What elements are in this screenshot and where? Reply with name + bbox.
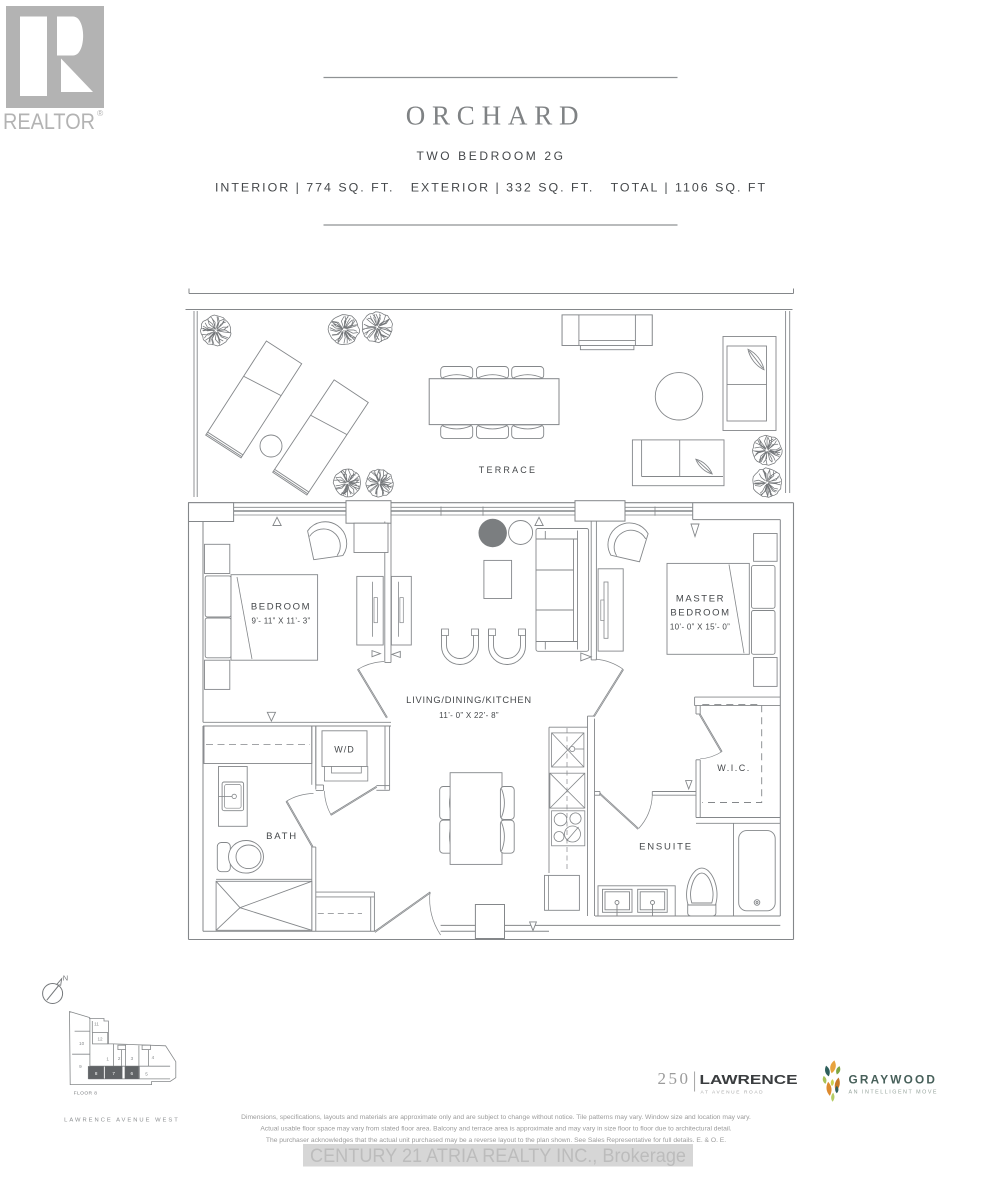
svg-text:BEDROOM: BEDROOM	[251, 602, 311, 613]
svg-text:3: 3	[131, 1056, 134, 1061]
svg-text:5: 5	[145, 1072, 148, 1077]
svg-text:ORCHARD: ORCHARD	[406, 101, 586, 131]
svg-text:7: 7	[112, 1071, 115, 1076]
svg-text:10’- 0” X 15’- 0”: 10’- 0” X 15’- 0”	[670, 623, 730, 632]
svg-text:6: 6	[131, 1071, 134, 1076]
svg-text:AT AVENUE ROAD: AT AVENUE ROAD	[701, 1090, 765, 1096]
svg-text:9’- 11” X 11’- 3”: 9’- 11” X 11’- 3”	[251, 617, 310, 626]
svg-text:TWO BEDROOM 2G: TWO BEDROOM 2G	[416, 149, 565, 163]
svg-text:Dimensions, specifications, la: Dimensions, specifications, layouts and …	[241, 1114, 751, 1121]
svg-text:W.I.C.: W.I.C.	[717, 763, 751, 773]
svg-text:INTERIOR | 774 SQ. FT. EXTER: INTERIOR | 774 SQ. FT. EXTERIOR | 332 SQ…	[215, 181, 767, 195]
svg-text:BEDROOM: BEDROOM	[670, 608, 730, 619]
svg-text:1: 1	[106, 1057, 109, 1062]
svg-text:LIVING/DINING/KITCHEN: LIVING/DINING/KITCHEN	[406, 695, 532, 705]
svg-text:W/D: W/D	[334, 745, 355, 755]
svg-text:CENTURY 21 ATRIA REALTY INC.,: CENTURY 21 ATRIA REALTY INC., Brokerage	[310, 1145, 686, 1167]
svg-text:MASTER: MASTER	[676, 594, 725, 605]
svg-text:2: 2	[118, 1056, 121, 1061]
svg-text:TERRACE: TERRACE	[479, 465, 537, 475]
svg-text:BATH: BATH	[266, 831, 298, 842]
svg-text:ENSUITE: ENSUITE	[639, 842, 693, 853]
svg-text:8: 8	[95, 1071, 98, 1076]
svg-text:®: ®	[97, 108, 104, 118]
svg-text:GRAYWOOD: GRAYWOOD	[849, 1073, 938, 1087]
svg-text:10: 10	[79, 1041, 85, 1046]
svg-text:4: 4	[152, 1055, 155, 1060]
svg-text:12: 12	[97, 1036, 103, 1041]
svg-text:LAWRENCE: LAWRENCE	[700, 1072, 798, 1087]
svg-text:The purchaser acknowledges tha: The purchaser acknowledges that the actu…	[266, 1137, 726, 1144]
svg-text:N: N	[63, 974, 68, 983]
svg-text:250: 250	[658, 1069, 691, 1088]
svg-text:AN INTELLIGENT MOVE: AN INTELLIGENT MOVE	[849, 1090, 939, 1096]
svg-text:REALTOR: REALTOR	[3, 109, 95, 134]
svg-text:11: 11	[94, 1021, 99, 1026]
svg-text:11’- 0” X 22’- 8”: 11’- 0” X 22’- 8”	[439, 711, 499, 720]
svg-text:LAWRENCE AVENUE WEST: LAWRENCE AVENUE WEST	[64, 1118, 180, 1124]
svg-text:Actual usable floor space may: Actual usable floor space may vary from …	[260, 1126, 731, 1133]
svg-text:9: 9	[79, 1064, 82, 1069]
svg-text:FLOOR 8: FLOOR 8	[74, 1091, 98, 1097]
